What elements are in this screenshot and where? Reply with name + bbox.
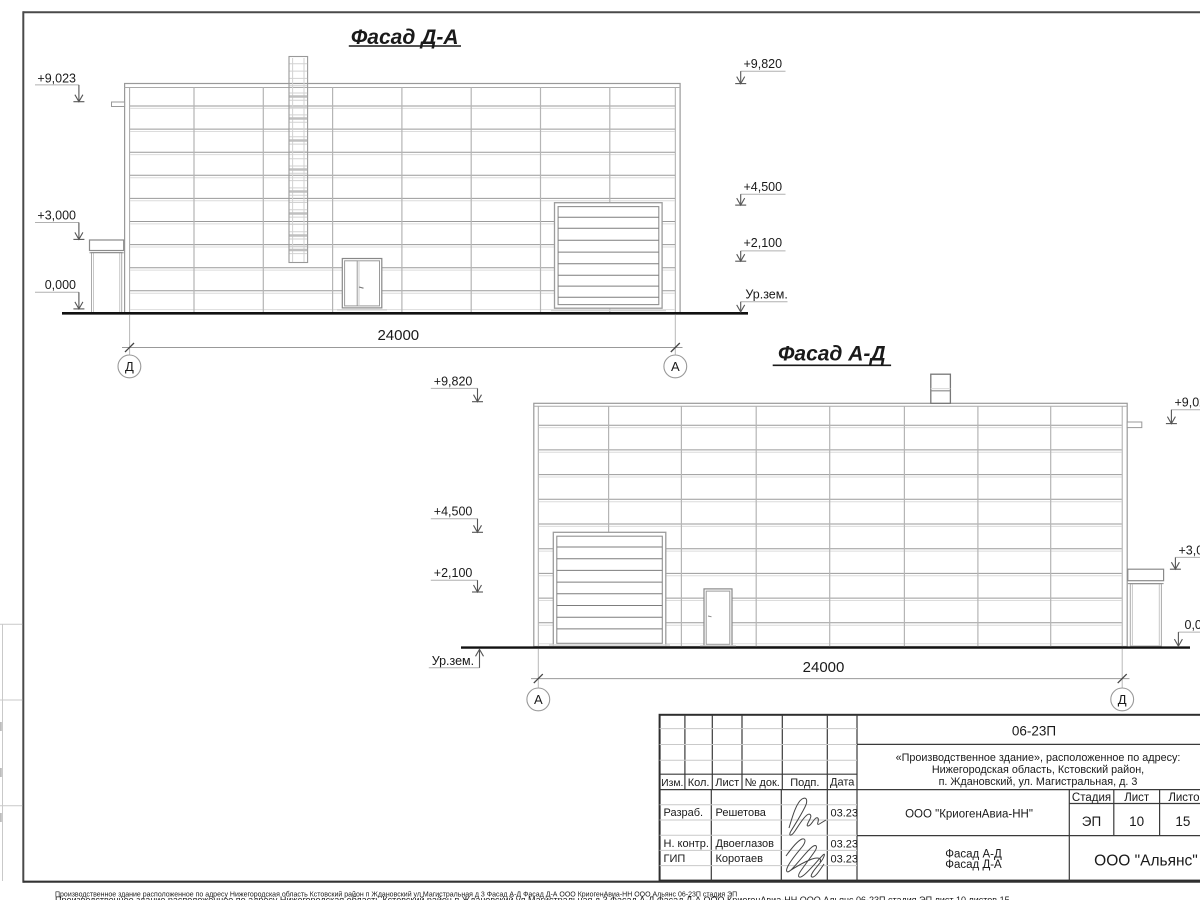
svg-text:Нижегородская область, Кстовск: Нижегородская область, Кстовский район,	[932, 764, 1144, 776]
svg-text:0,000: 0,000	[1185, 618, 1200, 632]
svg-text:10: 10	[1129, 814, 1144, 829]
svg-text:№ док.: № док.	[745, 777, 780, 789]
svg-text:Ур.зем.: Ур.зем.	[432, 654, 474, 668]
svg-text:03.23: 03.23	[831, 808, 859, 820]
svg-text:Фасад А-Д: Фасад А-Д	[778, 342, 886, 365]
svg-text:Д: Д	[1118, 692, 1127, 707]
svg-text:Производственное здание распол: Производственное здание расположенное по…	[55, 895, 1010, 900]
svg-text:ООО "КриогенАвиа-НН": ООО "КриогенАвиа-НН"	[905, 809, 1033, 821]
svg-text:А: А	[534, 692, 543, 707]
svg-text:ЭП: ЭП	[1082, 814, 1101, 829]
svg-text:24000: 24000	[377, 327, 419, 344]
svg-text:Изм.: Изм.	[661, 778, 683, 789]
svg-text:+9,023: +9,023	[1175, 396, 1200, 410]
svg-text:+2,100: +2,100	[434, 566, 473, 580]
svg-text:+4,500: +4,500	[744, 180, 783, 194]
svg-text:Кол.: Кол.	[688, 777, 710, 789]
svg-text:Д: Д	[125, 359, 134, 374]
svg-text:+9,820: +9,820	[744, 57, 783, 71]
svg-text:+3,000: +3,000	[1179, 543, 1200, 557]
svg-text:+3,000: +3,000	[37, 208, 76, 222]
svg-text:24000: 24000	[803, 659, 845, 676]
svg-text:ООО "Альянс": ООО "Альянс"	[1094, 852, 1198, 869]
svg-text:06-23П: 06-23П	[1012, 724, 1056, 739]
svg-text:«Производственное здание», рас: «Производственное здание», расположенное…	[896, 752, 1181, 764]
svg-text:Фасад Д-А: Фасад Д-А	[945, 859, 1002, 871]
svg-text:0,000: 0,000	[45, 278, 76, 292]
svg-text:Двоеглазов: Двоеглазов	[716, 838, 775, 850]
svg-text:03.23: 03.23	[831, 853, 859, 865]
svg-text:Лист: Лист	[715, 777, 739, 789]
svg-text:Лист: Лист	[1124, 792, 1150, 804]
svg-text:А: А	[671, 359, 680, 374]
svg-text:Стадия: Стадия	[1072, 792, 1111, 804]
svg-text:Н. контр.: Н. контр.	[664, 838, 709, 850]
svg-text:15: 15	[1175, 814, 1190, 829]
svg-text:п. Ждановский, ул. Магистральн: п. Ждановский, ул. Магистральная, д. 3	[939, 776, 1138, 788]
svg-text:Дата: Дата	[830, 777, 855, 789]
svg-text:Листов: Листов	[1168, 792, 1200, 804]
svg-text:Ур.зем.: Ур.зем.	[745, 288, 787, 302]
svg-text:+9,820: +9,820	[434, 374, 473, 388]
svg-text:+9,023: +9,023	[37, 72, 76, 86]
svg-text:Разраб.: Разраб.	[664, 807, 704, 819]
svg-text:03.23: 03.23	[831, 839, 859, 851]
svg-text:+2,100: +2,100	[744, 236, 783, 250]
svg-text:ГИП: ГИП	[664, 853, 686, 865]
svg-text:Решетова: Решетова	[716, 807, 767, 819]
svg-text:Подп.: Подп.	[790, 777, 819, 789]
svg-text:+4,500: +4,500	[434, 505, 473, 519]
svg-text:Коротаев: Коротаев	[716, 853, 764, 865]
